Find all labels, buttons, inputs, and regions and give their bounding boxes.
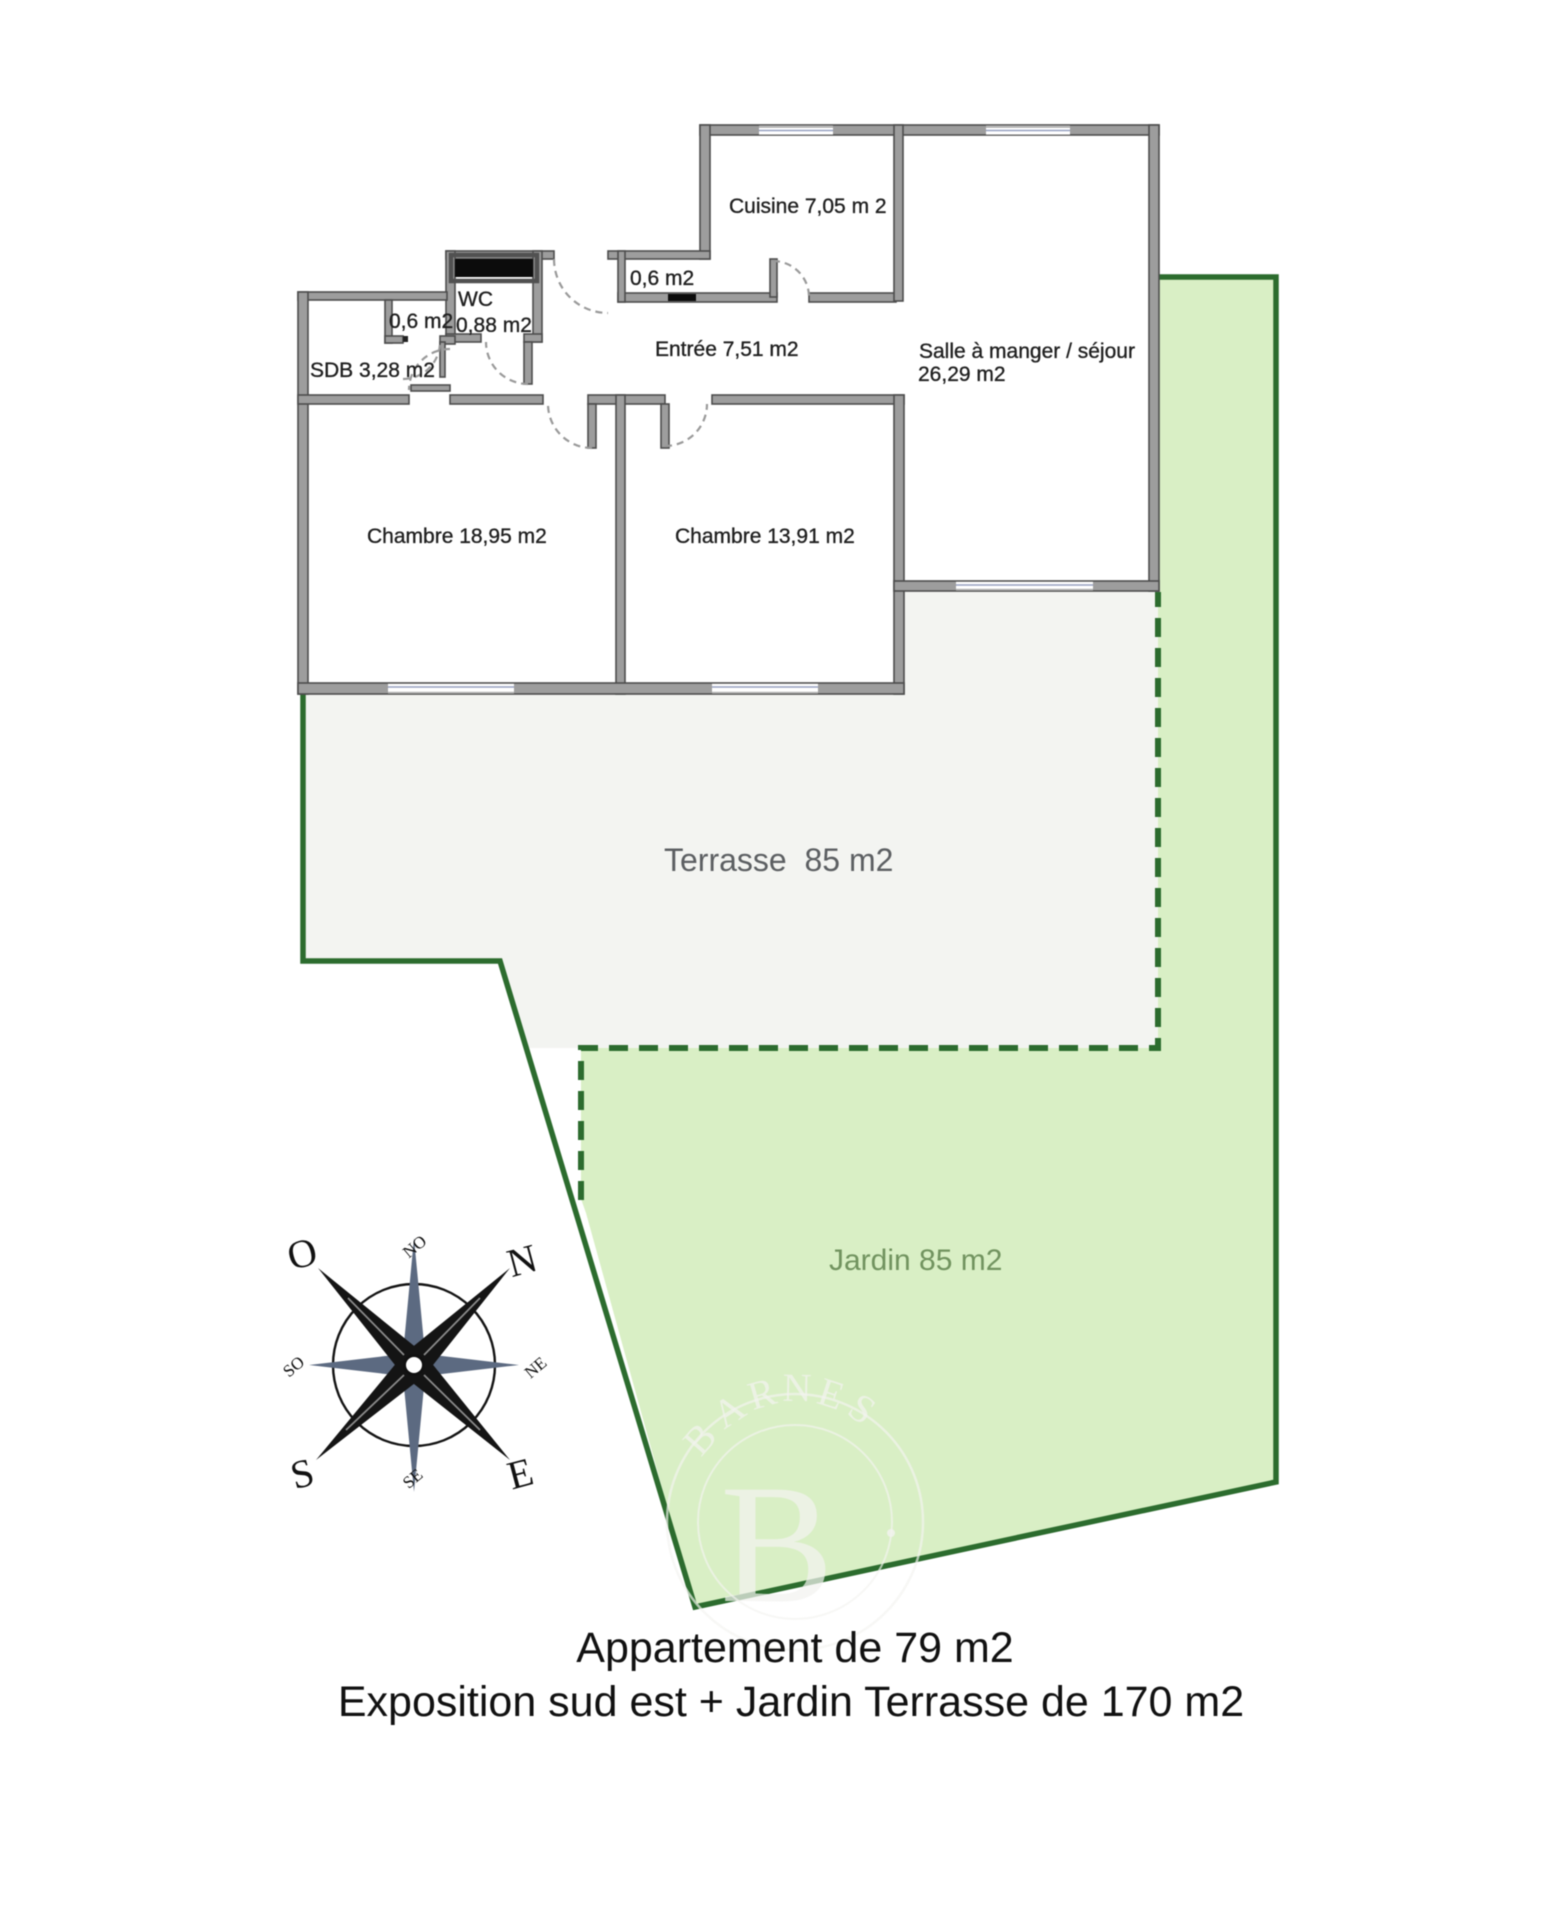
svg-text:26,29 m2: 26,29 m2	[918, 363, 1006, 386]
svg-text:E: E	[503, 1449, 538, 1499]
svg-text:S: S	[286, 1449, 319, 1498]
svg-text:NO: NO	[399, 1231, 430, 1261]
svg-text:Appartement de 79 m2: Appartement de 79 m2	[576, 1624, 1013, 1672]
svg-text:SO: SO	[279, 1352, 308, 1381]
svg-text:N: N	[782, 1365, 812, 1410]
svg-text:NE: NE	[521, 1353, 551, 1382]
svg-text:Salle à manger / séjour: Salle à manger / séjour	[919, 340, 1135, 363]
svg-text:Entrée 7,51 m2: Entrée 7,51 m2	[655, 338, 799, 361]
svg-text:WC: WC	[458, 288, 493, 311]
svg-text:SE: SE	[399, 1465, 426, 1492]
svg-text:Jardin 85 m2: Jardin 85 m2	[829, 1244, 1002, 1277]
svg-text:Terrasse 85 m2: Terrasse 85 m2	[664, 842, 893, 878]
svg-text:Exposition sud est + Jardin Te: Exposition sud est + Jardin Terrasse de …	[338, 1678, 1244, 1726]
svg-text:O: O	[282, 1228, 322, 1279]
svg-text:0,6 m2: 0,6 m2	[630, 267, 694, 290]
svg-text:B: B	[720, 1450, 833, 1638]
svg-text:0,6 m2: 0,6 m2	[389, 310, 453, 333]
svg-text:0,88 m2: 0,88 m2	[456, 314, 532, 337]
svg-text:SDB 3,28 m2: SDB 3,28 m2	[310, 359, 435, 382]
svg-text:Cuisine 7,05 m 2: Cuisine 7,05 m 2	[729, 195, 887, 218]
svg-text:Chambre 13,91 m2: Chambre 13,91 m2	[675, 525, 855, 548]
svg-text:N: N	[502, 1235, 542, 1286]
svg-text:Chambre 18,95 m2: Chambre 18,95 m2	[367, 525, 547, 548]
